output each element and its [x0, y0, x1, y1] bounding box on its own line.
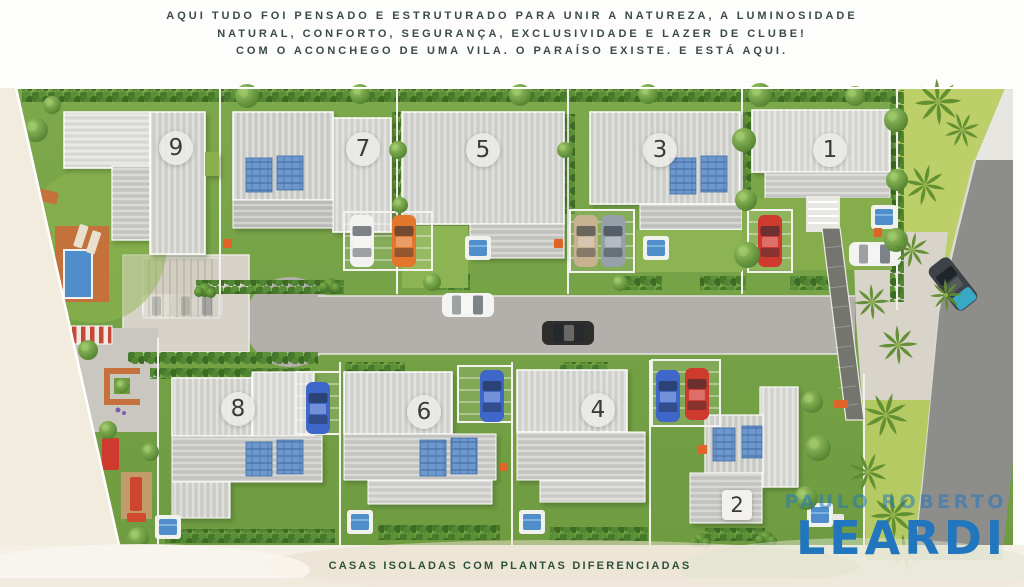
slide-icon	[130, 477, 142, 511]
house-number-3: 3	[643, 133, 677, 167]
play-deck	[121, 472, 152, 522]
solar-panel-icon	[246, 158, 272, 192]
car-icon	[574, 215, 598, 267]
solar-panel-icon	[246, 442, 272, 476]
car-icon	[392, 215, 416, 267]
headline-line-1: AQUI TUDO FOI PENSADO E ESTRUTURADO PARA…	[0, 8, 1024, 26]
brand-logo-wordmark: LEARDI	[784, 515, 1007, 561]
spa-icon	[519, 510, 545, 534]
brand-logo: PAULO ROBERTO LEARDI	[784, 493, 1007, 561]
solar-panel-icon	[713, 428, 735, 461]
house-number-7: 7	[346, 132, 380, 166]
spa-icon	[347, 510, 373, 534]
solar-panel-icon	[701, 156, 727, 192]
headline-line-2: NATURAL, CONFORTO, SEGURANÇA, EXCLUSIVID…	[0, 26, 1024, 44]
headline-line-3: COM O ACONCHEGO DE UMA VILA. O PARAÍSO E…	[0, 43, 1024, 61]
spa-icon	[155, 515, 181, 539]
house-number-8: 8	[221, 392, 255, 426]
car-icon	[542, 321, 594, 345]
entry-steps	[806, 196, 840, 232]
pool-icon	[64, 250, 92, 298]
car-icon	[758, 215, 782, 267]
spa-icon	[465, 236, 491, 260]
solar-panel-icon	[451, 438, 477, 474]
solar-panel-icon	[277, 156, 303, 190]
brand-logo-name: PAULO ROBERTO	[784, 493, 1007, 512]
solar-panel-icon	[277, 440, 303, 474]
house-number-1: 1	[813, 133, 847, 167]
house-number-5: 5	[466, 133, 500, 167]
car-icon	[656, 370, 680, 422]
car-icon	[442, 293, 494, 317]
car-icon	[480, 370, 504, 422]
solar-panel-icon	[742, 426, 762, 458]
solar-panel-icon	[670, 158, 696, 194]
house-number-2: 2	[722, 490, 752, 520]
car-icon	[685, 368, 709, 420]
solar-panel-icon	[420, 440, 446, 476]
spa-icon	[871, 205, 897, 229]
house-number-4: 4	[581, 393, 615, 427]
car-icon	[350, 215, 374, 267]
car-icon	[306, 382, 330, 434]
play-tower-icon	[102, 438, 119, 470]
headline: AQUI TUDO FOI PENSADO E ESTRUTURADO PARA…	[0, 8, 1024, 61]
car-icon	[601, 215, 625, 267]
spa-icon	[643, 236, 669, 260]
house-number-6: 6	[407, 395, 441, 429]
house-number-9: 9	[159, 131, 193, 165]
